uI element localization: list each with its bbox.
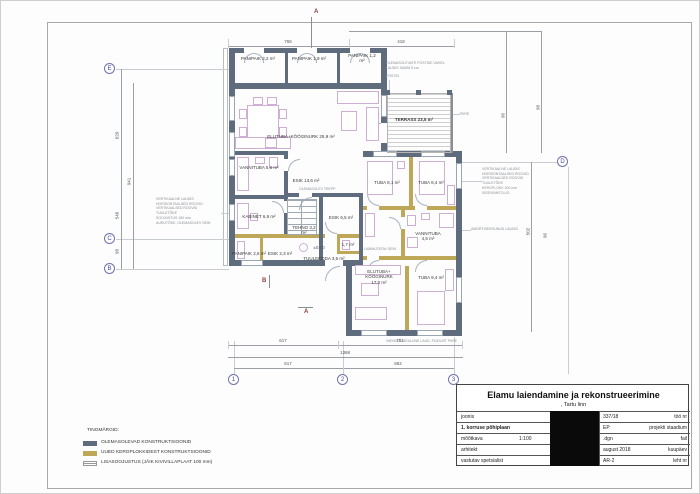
room-label-tehno: TEHNO 3,2 m² — [292, 225, 316, 236]
grid-bubble-2: 2 — [337, 374, 348, 385]
leader-line — [453, 114, 460, 115]
window — [417, 330, 443, 336]
leader-line — [221, 213, 229, 214]
dim-ext — [462, 341, 463, 349]
new-wall — [260, 238, 263, 260]
drawing-subtitle: , Tartu linn — [457, 402, 690, 408]
coffee-table — [341, 111, 357, 131]
room-label-wc-17: 1,7 m² — [342, 242, 355, 247]
leader-line — [462, 181, 482, 182]
wall — [235, 151, 284, 155]
room-label-panipaik-26: PANIPAIK 2,6 m² — [232, 251, 266, 256]
terrace-post — [447, 90, 452, 95]
field-scale: mõõtkava — [461, 436, 483, 442]
demolish-note: LAMMUTATAV SEIN — [364, 247, 396, 252]
value-scale: 1:100 — [519, 436, 532, 442]
new-wall — [337, 251, 359, 254]
dim-line — [121, 69, 122, 269]
dim-line — [349, 31, 541, 32]
grid-leader — [116, 269, 229, 270]
dim-value: 941 — [127, 170, 132, 194]
grid-bubble-e: E — [104, 63, 115, 74]
dim-value: 418 — [381, 39, 421, 44]
dim-value: 620 — [115, 124, 120, 148]
terrace-deck — [387, 93, 451, 153]
sofa — [337, 91, 379, 104]
room-label-kabinet: KABINET 6,9 m² — [242, 214, 275, 219]
shower — [439, 213, 454, 228]
grid-bubble-1: 1 — [228, 374, 239, 385]
canopy-note: VARIKATUSEALUNE LAUD, PUIDUST PIIRE — [386, 339, 457, 344]
room-label-vannituba: VANNITUBA 5,6 m² — [239, 165, 278, 170]
dim-line — [133, 83, 134, 269]
section-line — [311, 17, 312, 48]
room-label-tuba-94: TUBA 9,4 m² — [418, 275, 444, 280]
wardrobe — [447, 185, 455, 205]
dim-value: 765 — [268, 39, 308, 44]
room-label-panipaik-3: PANIPAIK 1,2 m² — [348, 53, 376, 64]
sink — [421, 213, 430, 220]
dim-line — [531, 162, 532, 332]
chair — [239, 127, 247, 137]
dim-value: 1368 — [325, 350, 365, 355]
grid-leader — [116, 69, 229, 70]
grid-bubble-c: C — [104, 233, 115, 244]
bed — [419, 161, 445, 195]
dim-line — [228, 357, 463, 358]
room-label-elutuba-kooginurk: ELUTUBA+KÖÖGINURK 25,9 m² — [267, 134, 334, 139]
room-label-vannituba-45: VANNITUBA 4,5 m² — [412, 231, 444, 242]
dim-value: 98 — [536, 96, 541, 120]
terrace-post — [416, 90, 421, 95]
dim-value: 502 — [526, 220, 531, 244]
new-wall — [337, 238, 340, 252]
room-label-esik-136: ESIK 13,6 m² — [293, 178, 320, 183]
dim-ext — [349, 39, 350, 48]
wall-buildup-note-right: VERTIKAALNE LAUDIS HORISONTAALSED ROOVID… — [482, 167, 529, 195]
legend-title: TINGMÄRGID: — [87, 428, 119, 433]
dim-value: 98 — [115, 240, 120, 264]
bed — [417, 291, 445, 325]
field-responsible-specialist: vastutav spetsialist — [461, 458, 503, 464]
window — [229, 96, 235, 121]
room-label-tuba-81: TUBA 8,1 m² — [374, 180, 400, 185]
new-wall — [405, 266, 409, 330]
window — [229, 159, 235, 176]
sofa — [355, 307, 387, 320]
door-opening — [415, 206, 427, 210]
closet — [365, 213, 375, 237]
drawing-title: Elamu laiendamine ja rekonstrueerimine — [457, 390, 690, 400]
sofa — [366, 107, 379, 141]
field-joonis: joonis — [461, 414, 474, 420]
room-label-esik-23: ESIK 2,3 m² — [268, 251, 292, 256]
room-label-panipaik-2: PANIPAIK 1,9 m² — [292, 56, 326, 61]
section-marker-b: B — [262, 278, 266, 284]
window — [361, 330, 387, 336]
section-line — [269, 275, 270, 288]
unit-file: fail — [603, 436, 687, 442]
stove — [265, 138, 277, 148]
leader-line — [462, 230, 471, 231]
unit-date: kuupäev — [603, 447, 687, 453]
redacted-block — [550, 411, 599, 466]
field-sheet-name: 1. korruse põhiplaan — [461, 425, 510, 431]
title-block: Elamu laiendamine ja rekonstrueerimine ,… — [456, 384, 689, 466]
dim-value: 546 — [115, 204, 120, 228]
legend-item-existing: OLEMASOLEVAD KONSTRUKTSIOONID — [101, 440, 191, 445]
wardrobe — [445, 269, 454, 291]
wall-buildup-note-left: VERTIKAALNE LAUDIS HORISONTAALSED ROOVID… — [156, 197, 210, 225]
dim-value: 617 — [268, 361, 308, 366]
grid-bubble-d: D — [557, 156, 568, 167]
railing-note: PIIRE — [460, 112, 469, 117]
stairs-note: OLEMASOLEV TREPP — [299, 187, 336, 192]
terrace-note-line2: LAUDIS SAMM 5 cm — [386, 66, 419, 71]
unit-sheet-number: leht nr — [603, 458, 687, 464]
posts-note: POSTID — [386, 74, 399, 79]
legend-item-new: UUED KERGPLOKKIDEST KONSTRUKTSIOONID — [101, 450, 211, 455]
legend-swatch-insulation — [83, 461, 97, 466]
dim-ext — [454, 39, 455, 48]
window — [241, 260, 263, 266]
drawing-sheet: PANIPAIK 2,2 m² PANIPAIK 1,9 m² PANIPAIK… — [0, 0, 700, 494]
field-architect: arhitekt — [461, 447, 477, 453]
insulation-strip — [223, 48, 228, 266]
door-opening — [367, 206, 379, 210]
new-wall — [409, 157, 413, 206]
section-line — [298, 307, 313, 308]
window — [229, 204, 235, 221]
sink — [255, 157, 265, 164]
grid-bubble-b: B — [104, 263, 115, 274]
dim-line — [541, 31, 542, 153]
guide-line — [568, 167, 569, 374]
level-marker: ±0.00 — [309, 245, 329, 250]
terrace-railing — [451, 93, 453, 153]
dim-line — [234, 368, 454, 369]
terrace-post — [385, 90, 390, 95]
nightstand — [397, 161, 405, 169]
dim-line — [506, 31, 507, 153]
chair — [279, 109, 287, 119]
wall — [285, 53, 288, 83]
dim-ext — [343, 364, 344, 372]
grid-leader — [462, 162, 557, 163]
room-label-esik-65: ESIK 6,5 m² — [329, 215, 353, 220]
wall — [346, 260, 352, 336]
dim-line — [228, 46, 454, 47]
siding-note: AMORTISEERUNUD LAUDIS — [471, 227, 518, 232]
legend-swatch-existing — [83, 441, 97, 446]
chair — [253, 97, 263, 105]
wall — [235, 195, 284, 199]
divider-vertical — [599, 411, 600, 466]
section-marker-a-top: A — [314, 9, 318, 15]
leader-line — [389, 80, 390, 90]
room-label-elutuba-17: ELUTUBA+ KÖÖGINURK 17,0 m² — [361, 269, 397, 285]
dim-ext — [338, 341, 339, 349]
toilet — [407, 215, 416, 226]
dim-value: 862 — [378, 361, 418, 366]
door-opening — [325, 234, 337, 238]
legend-item-insulation: LISASOOJUSTUS (JÄIK KIVIVILLAPLAAT 100 m… — [101, 460, 212, 465]
room-label-tuulekoda: TUULEKODA 3,6 m² — [303, 256, 344, 261]
dim-value: 96 — [543, 224, 548, 248]
door-opening — [401, 217, 405, 229]
legend-swatch-new — [83, 451, 97, 456]
room-label-panipaik-1: PANIPAIK 2,2 m² — [241, 56, 275, 61]
room-label-terrass: TERRASS 23,5 m² — [395, 117, 433, 122]
chair — [267, 97, 277, 105]
terrace-note-line1: OLEMASOLEVATE POSTIDE VAHEL — [386, 61, 445, 66]
dim-value: 96 — [501, 104, 506, 128]
wall — [229, 83, 387, 89]
boiler — [299, 243, 308, 252]
bed — [367, 161, 393, 195]
dim-line — [228, 345, 463, 346]
bathtub — [237, 157, 249, 191]
section-marker-a-bottom: A — [304, 309, 308, 315]
room-label-tuba-84: TUBA 8,4 m² — [418, 180, 444, 185]
dim-ext — [228, 39, 229, 48]
dim-value: 617 — [263, 338, 303, 343]
window — [456, 163, 462, 189]
unit-stage: projekti staadium — [603, 425, 687, 431]
unit-work-number: töö nr — [603, 414, 687, 420]
wall — [337, 53, 340, 83]
dim-ext — [228, 341, 229, 349]
window — [456, 277, 462, 303]
chair — [239, 109, 247, 119]
